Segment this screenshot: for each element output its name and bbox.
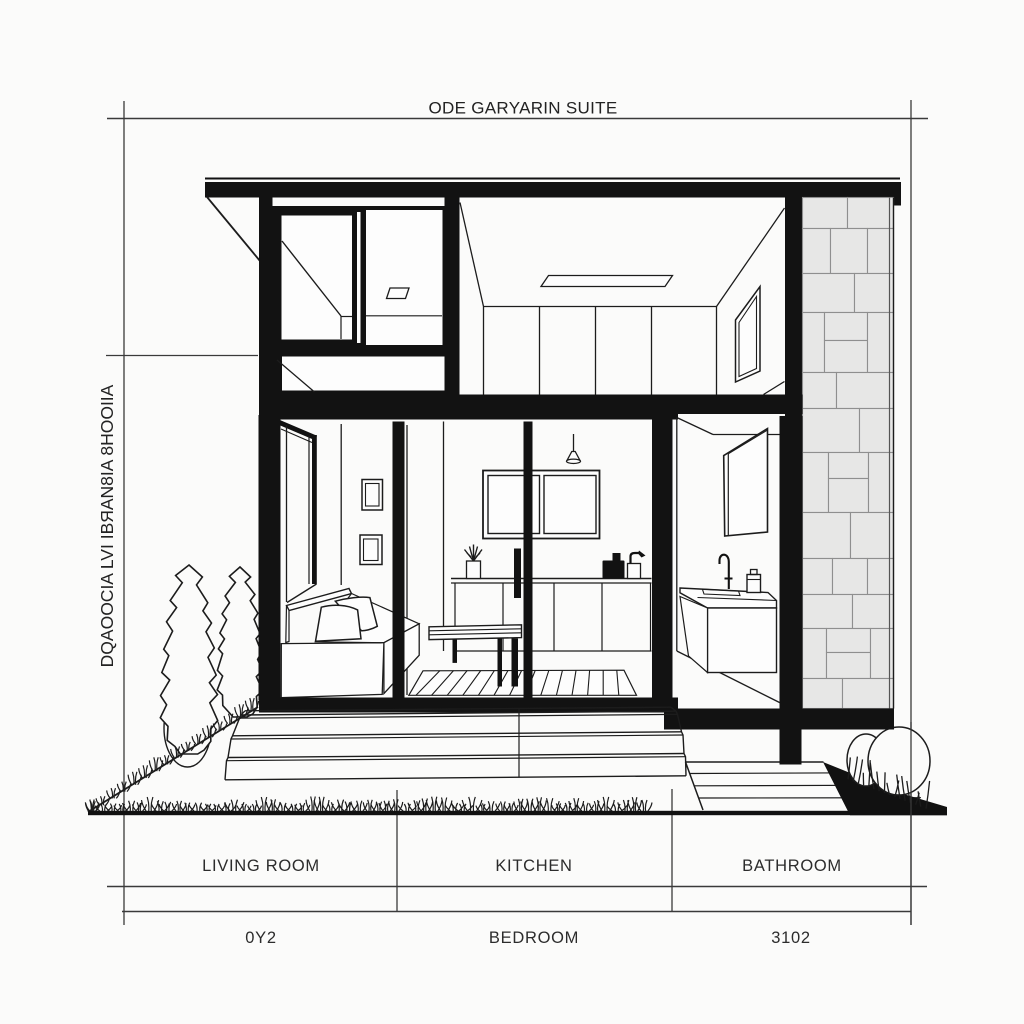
svg-text:KITCHEN: KITCHEN	[495, 857, 572, 875]
svg-text:BEDROOM: BEDROOM	[489, 929, 579, 947]
svg-text:DQAOOCIA LVI IBЯAN8IA 8HOOIIA: DQAOOCIA LVI IBЯAN8IA 8HOOIIA	[97, 384, 117, 667]
svg-text:ODE GARYARIN SUITE: ODE GARYARIN SUITE	[429, 99, 618, 118]
svg-text:BATHROOM: BATHROOM	[742, 857, 842, 875]
svg-text:3102: 3102	[771, 929, 811, 947]
svg-text:0Y2: 0Y2	[245, 929, 276, 947]
svg-text:LIVING ROOM: LIVING ROOM	[202, 857, 320, 875]
